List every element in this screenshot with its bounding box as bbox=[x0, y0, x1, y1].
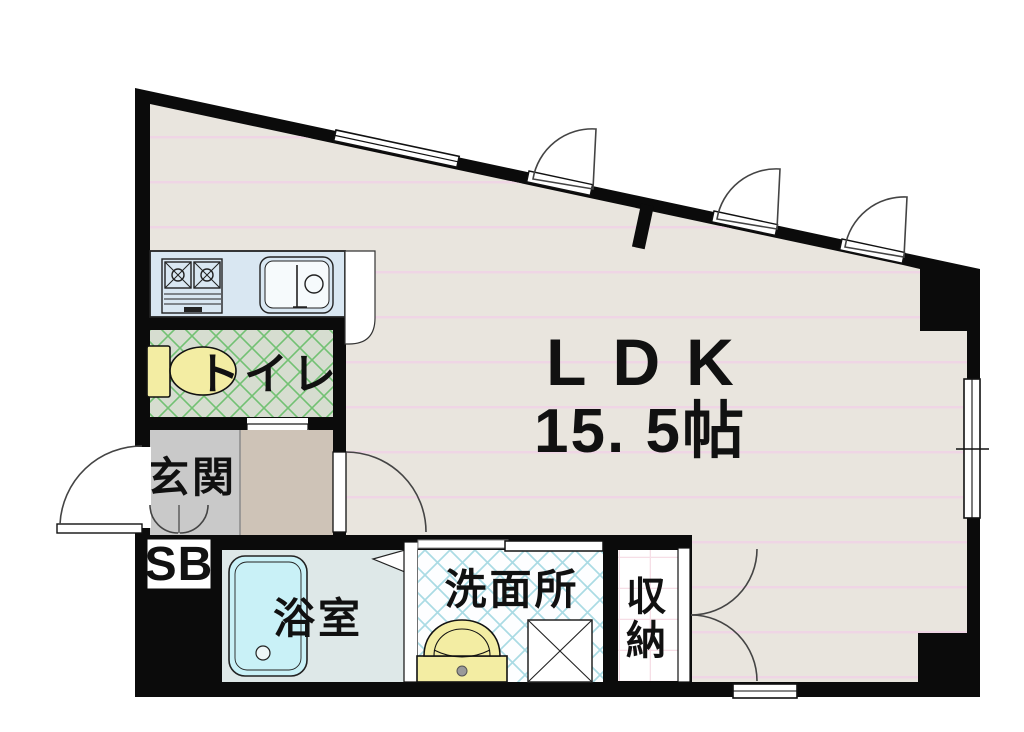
closet-door-panel bbox=[678, 548, 690, 682]
partition-bath-washroom bbox=[404, 542, 418, 682]
toilet-label: トイレ bbox=[196, 350, 340, 399]
bathroom-label: 浴室 bbox=[273, 595, 363, 642]
ldk-label: LDK bbox=[546, 325, 760, 399]
toilet-room: トイレ bbox=[147, 330, 340, 417]
entrance-label: 玄関 bbox=[147, 454, 237, 501]
ldk-area-label: 15. 5帖 bbox=[534, 397, 746, 466]
washroom-label: 洗面所 bbox=[444, 566, 579, 613]
closet-label-2: 納 bbox=[626, 619, 666, 663]
kitchen-counter bbox=[150, 251, 345, 317]
entrance-door bbox=[57, 446, 151, 533]
shoe-box-label: SB bbox=[145, 538, 214, 591]
refrigerator-space bbox=[345, 251, 375, 344]
washroom: 洗面所 bbox=[417, 540, 603, 682]
sink-icon bbox=[260, 257, 333, 313]
bottom-wall-window bbox=[733, 684, 797, 698]
floor-plan-page: トイレ 玄関 SB 浴室 bbox=[0, 0, 1024, 732]
drain-icon bbox=[256, 646, 270, 660]
floor-plan-svg: トイレ 玄関 SB 浴室 bbox=[0, 0, 1024, 732]
washing-machine-icon bbox=[528, 620, 592, 682]
bathroom: 浴室 bbox=[222, 550, 405, 682]
shoe-box: SB bbox=[145, 538, 214, 591]
hallway-floor bbox=[240, 430, 333, 535]
closet-label-1: 収 bbox=[626, 575, 666, 619]
